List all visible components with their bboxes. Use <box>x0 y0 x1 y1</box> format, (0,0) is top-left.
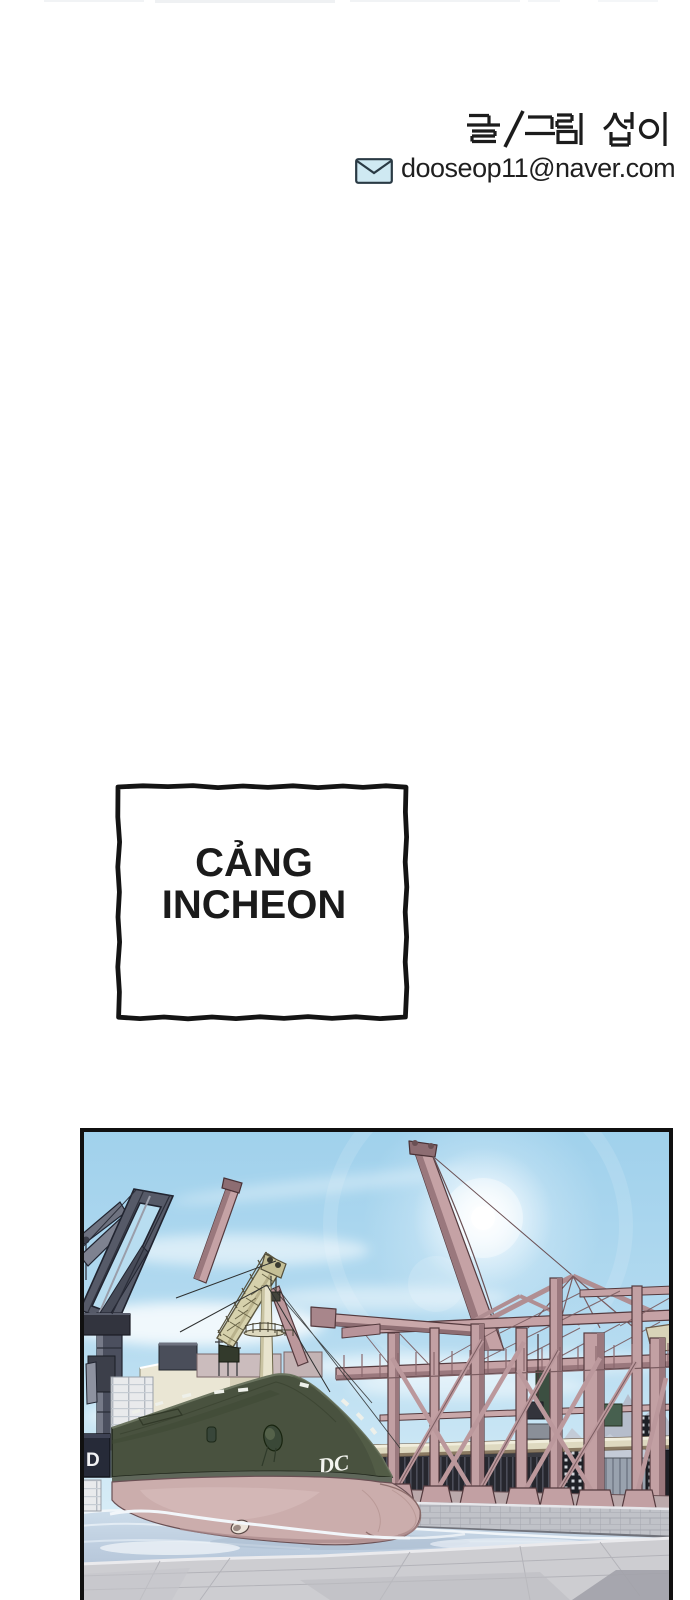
svg-text:D: D <box>86 1450 100 1471</box>
